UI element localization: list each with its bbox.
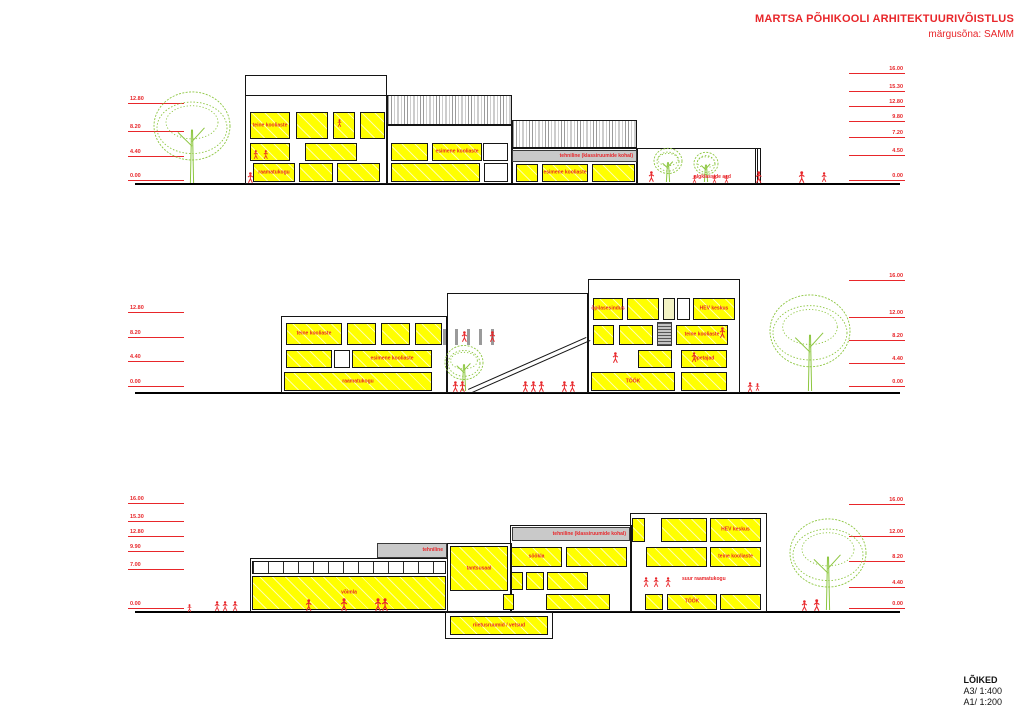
room-label: HEV keskus <box>721 528 750 533</box>
elevation-value: 7.00 <box>128 562 184 569</box>
elevation-value: 16.00 <box>128 496 184 503</box>
person-icon <box>222 601 228 611</box>
elevation-marker: 0.00 <box>128 601 184 609</box>
room-label: söökla <box>529 555 545 560</box>
room <box>526 572 544 590</box>
room <box>632 518 645 542</box>
clerestory-windows <box>252 561 446 574</box>
room <box>566 547 627 567</box>
technical-slab: tehniline <box>377 543 447 558</box>
architectural-sheet: MARTSA PÕHIKOOLI ARHITEKTUURIVÕISTLUS mä… <box>0 0 1024 724</box>
sheet-footer: LÕIKED A3/ 1:400 A1/ 1:200 <box>963 675 1002 708</box>
elevation-line <box>128 569 184 570</box>
person-icon <box>187 604 192 612</box>
technical-slab: tehniline (klassiruumide kohal) <box>512 527 630 541</box>
room <box>646 547 707 567</box>
room-label: TÖÖK <box>685 600 699 605</box>
elevation-line <box>128 521 184 522</box>
person-icon <box>653 577 659 587</box>
room: söökla <box>511 547 562 567</box>
elevation-line <box>128 536 184 537</box>
room: HEV keskus <box>710 518 761 542</box>
person-icon <box>643 577 649 587</box>
room <box>511 572 523 590</box>
elevation-value: 15.30 <box>128 514 184 521</box>
elevation-value: 9.90 <box>128 544 184 551</box>
room: teine kooliaste <box>710 547 761 567</box>
room <box>546 594 610 610</box>
room <box>503 594 514 610</box>
area-label: suur raamatukogu <box>682 577 726 582</box>
room: TÖÖK <box>667 594 717 610</box>
sheet-title: LÕIKED <box>963 675 1002 686</box>
elevation-value: 16.00 <box>849 497 905 504</box>
person-icon <box>801 600 808 611</box>
room-label: võimla <box>341 591 357 596</box>
room: võimla <box>252 576 446 610</box>
room <box>547 572 588 590</box>
elevation-marker: 15.30 <box>128 514 184 522</box>
elevation-value: 0.00 <box>128 601 184 608</box>
person-icon <box>340 598 348 611</box>
elevation-value: 12.80 <box>128 529 184 536</box>
section-3: 16.0015.3012.809.907.000.0016.0012.008.2… <box>0 0 1024 724</box>
person-icon <box>214 601 220 611</box>
elevation-marker: 12.80 <box>128 529 184 537</box>
room <box>720 594 761 610</box>
elevation-line <box>128 551 184 552</box>
person-icon <box>665 577 671 587</box>
person-icon <box>381 598 389 611</box>
elevation-line <box>128 608 184 609</box>
scale-a3: A3/ 1:400 <box>963 686 1002 697</box>
person-icon <box>813 599 820 611</box>
room: tantsusaal <box>450 546 508 591</box>
elevation-marker: 7.00 <box>128 562 184 570</box>
tree-icon <box>789 518 867 610</box>
elevation-marker: 16.00 <box>128 496 184 504</box>
room-label: tehniline <box>422 548 443 553</box>
person-icon <box>232 601 238 611</box>
room <box>661 518 707 542</box>
room-label: riietusruumid / vetsud <box>473 623 525 628</box>
elevation-marker: 9.90 <box>128 544 184 552</box>
elevation-line <box>849 504 905 505</box>
room <box>645 594 663 610</box>
elevation-line <box>128 503 184 504</box>
elevation-marker: 16.00 <box>849 497 905 505</box>
room: riietusruumid / vetsud <box>450 616 548 635</box>
room-label: teine kooliaste <box>718 555 753 560</box>
scale-a1: A1/ 1:200 <box>963 697 1002 708</box>
room-label: tantsusaal <box>467 566 492 571</box>
room-label: tehniline (klassiruumide kohal) <box>553 532 626 537</box>
person-icon <box>305 599 312 611</box>
